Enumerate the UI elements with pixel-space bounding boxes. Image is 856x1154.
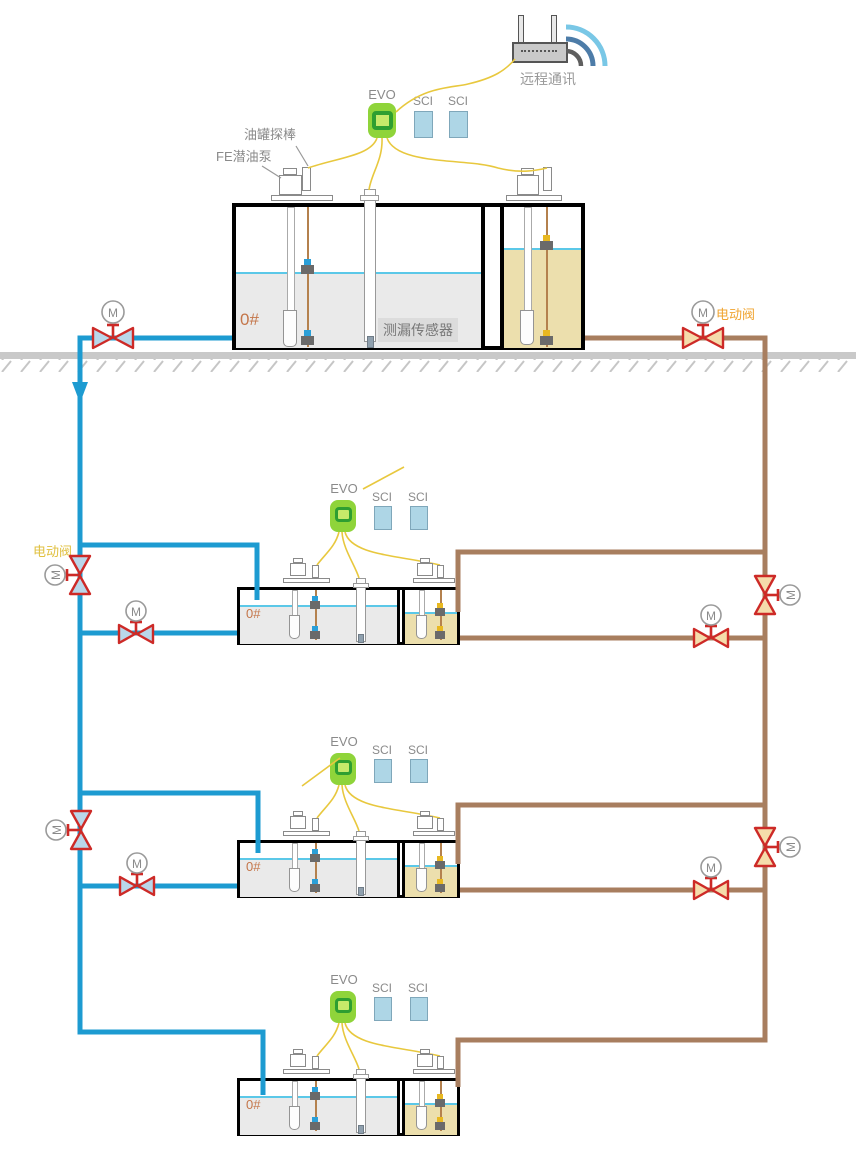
motor-valve: M: [93, 301, 133, 348]
sci-module: [410, 997, 428, 1021]
motor-valve: M: [120, 853, 154, 895]
sci-label: SCI: [407, 95, 439, 108]
tank-probe-icon: [437, 1056, 444, 1069]
valve-motor-label: M: [706, 609, 716, 623]
probe-float: [435, 861, 445, 869]
signal-wiring: [302, 59, 547, 786]
evo-screen-icon: [372, 111, 393, 130]
valve-motor-label: M: [131, 605, 141, 619]
probe-float: [435, 631, 445, 639]
compartment-divider: [397, 1078, 400, 1136]
sci-module: [374, 997, 392, 1021]
sci-label: SCI: [403, 491, 433, 504]
sci-module: [410, 506, 428, 530]
submersible-pump-head-icon: [417, 816, 433, 829]
submersible-pump-head-icon: [517, 175, 539, 195]
leak-sensor-collar: [353, 1074, 369, 1079]
ground-line: [0, 352, 856, 372]
motor-valve: M: [694, 857, 728, 899]
pump-head-cap: [283, 168, 297, 175]
pump-column: [292, 843, 298, 869]
leak-sensor-label: 测漏传感器: [378, 318, 458, 342]
valve-motor-label: M: [784, 590, 798, 600]
evo-label: EVO: [324, 735, 364, 749]
router-leds: [521, 50, 557, 52]
remote-comm-label: 远程通讯: [520, 72, 576, 87]
pump-column: [419, 1081, 425, 1107]
electric-valve-label: 电动阀: [716, 304, 755, 323]
pump-column: [524, 207, 532, 311]
router-antenna-icon: [518, 15, 524, 44]
flow-arrow: [72, 382, 88, 403]
pump-head-cap: [420, 558, 430, 563]
evo-screen-icon: [335, 507, 352, 522]
submersible-pump-head-icon: [290, 1054, 306, 1067]
leak-sensor-collar: [360, 195, 379, 201]
tank-right-compartment-liquid: [405, 865, 457, 897]
probe-float: [310, 854, 320, 862]
pump-column: [292, 590, 298, 616]
manhole-flange: [413, 578, 455, 583]
probe-float: [435, 1122, 445, 1130]
submersible-pump-head-icon: [417, 1054, 433, 1067]
pump-head-cap: [521, 168, 534, 175]
valve-motor-label: M: [49, 570, 63, 580]
valve-motor-label: M: [132, 857, 142, 871]
compartment-divider: [397, 587, 400, 645]
tank-probe-icon: [437, 818, 444, 831]
fuel-grade-label: 0#: [246, 1097, 260, 1112]
evo-controller: [330, 991, 356, 1023]
motor-valve: M: [45, 556, 90, 594]
tank-probe-label: 油罐探棒: [244, 128, 296, 142]
submersible-pump-body-icon: [289, 615, 300, 639]
submersible-pump-body-icon: [520, 310, 534, 345]
leak-sensor-icon: [358, 634, 364, 643]
submersible-pump-head-icon: [279, 175, 302, 195]
pump-head-cap: [293, 811, 303, 816]
sci-label: SCI: [403, 744, 433, 757]
manhole-flange: [506, 195, 562, 201]
evo-controller: [330, 500, 356, 532]
sci-label: SCI: [367, 982, 397, 995]
probe-float: [540, 241, 553, 250]
tank-probe-icon: [312, 1056, 319, 1069]
probe-float: [310, 631, 320, 639]
submersible-pump-body-icon: [289, 1106, 300, 1130]
pump-column: [419, 843, 425, 869]
tank-right-compartment-liquid: [405, 1103, 457, 1135]
pump-head-cap: [293, 558, 303, 563]
submersible-pump-head-icon: [290, 816, 306, 829]
manhole-flange: [271, 195, 333, 201]
leak-sensor-tube: [364, 189, 376, 342]
tank-probe-icon: [312, 818, 319, 831]
sci-label: SCI: [403, 982, 433, 995]
sci-module: [414, 111, 433, 138]
evo-screen-icon: [335, 760, 352, 775]
wifi-signal-icon: [566, 27, 605, 66]
leak-sensor-collar: [353, 836, 369, 841]
compartment-divider: [481, 203, 485, 350]
sci-module: [449, 111, 468, 138]
probe-float: [301, 265, 314, 274]
probe-float: [540, 336, 553, 345]
valve-motor-label: M: [698, 306, 708, 320]
sci-module: [374, 506, 392, 530]
evo-controller: [330, 753, 356, 785]
tank-probe-icon: [312, 565, 319, 578]
leak-sensor-icon: [358, 887, 364, 896]
evo-label: EVO: [324, 973, 364, 987]
fuel-grade-label: 0#: [246, 859, 260, 874]
motor-valve: M: [755, 576, 800, 614]
leader-line: [296, 146, 308, 166]
manhole-flange: [283, 1069, 330, 1074]
tank-monitoring-diagram: 远程通讯 EVO SCI SCI 油罐探棒 FE潜油泵 0# 测漏传感器 电动阀…: [0, 0, 856, 1154]
router-antenna-icon: [551, 15, 557, 44]
motor-valve: M: [119, 601, 153, 643]
pump-head-cap: [420, 1049, 430, 1054]
manhole-flange: [413, 1069, 455, 1074]
valve-motor-label: M: [706, 861, 716, 875]
leak-sensor-icon: [367, 336, 374, 348]
manhole-flange: [413, 831, 455, 836]
probe-rod: [307, 207, 309, 347]
motor-valve: M: [694, 605, 728, 647]
probe-float: [435, 884, 445, 892]
probe-float: [310, 884, 320, 892]
leak-sensor-collar: [353, 583, 369, 588]
evo-label: EVO: [324, 482, 364, 496]
submersible-pump-body-icon: [416, 615, 427, 639]
probe-rod: [546, 207, 548, 347]
submersible-pump-head-icon: [417, 563, 433, 576]
compartment-divider: [397, 840, 400, 898]
fuel-grade-label: 0#: [246, 606, 260, 621]
wifi-router-icon: [512, 42, 568, 63]
submersible-pump-head-icon: [290, 563, 306, 576]
probe-float: [310, 601, 320, 609]
valve-motor-label: M: [108, 306, 118, 320]
tank-probe-icon: [543, 167, 552, 191]
electric-valve-label: 电动阀: [33, 541, 72, 560]
sci-label: SCI: [367, 744, 397, 757]
tank-station: EVO SCI SCI: [228, 718, 478, 908]
submersible-pump-body-icon: [283, 310, 297, 347]
valve-motor-label: M: [784, 842, 798, 852]
pump-head-cap: [420, 811, 430, 816]
evo-controller: [368, 103, 396, 138]
tank-right-compartment-liquid: [405, 612, 457, 644]
probe-float: [435, 1099, 445, 1107]
leak-sensor-icon: [358, 1125, 364, 1134]
fuel-grade-label: 0#: [240, 310, 259, 330]
pump-column: [287, 207, 295, 311]
evo-screen-icon: [335, 998, 352, 1013]
probe-float: [435, 608, 445, 616]
sci-module: [410, 759, 428, 783]
manhole-flange: [283, 831, 330, 836]
motor-valve: M: [46, 811, 91, 849]
sci-module: [374, 759, 392, 783]
probe-float: [301, 336, 314, 345]
sci-label: SCI: [442, 95, 474, 108]
sci-label: SCI: [367, 491, 397, 504]
pipe-brown: [458, 338, 765, 1087]
pump-column: [292, 1081, 298, 1107]
submersible-pump-label: FE潜油泵: [216, 150, 272, 164]
submersible-pump-body-icon: [416, 1106, 427, 1130]
tank-probe-icon: [437, 565, 444, 578]
motor-valve: M: [755, 828, 800, 866]
submersible-pump-body-icon: [289, 868, 300, 892]
valve-motor-label: M: [50, 825, 64, 835]
evo-label: EVO: [363, 88, 401, 102]
submersible-pump-body-icon: [416, 868, 427, 892]
tank-station: EVO SCI SCI: [228, 956, 478, 1146]
pump-column: [419, 590, 425, 616]
probe-float: [310, 1092, 320, 1100]
tank-probe-icon: [302, 167, 311, 191]
probe-float: [310, 1122, 320, 1130]
pump-head-cap: [293, 1049, 303, 1054]
tank-station: EVO SCI SCI: [228, 465, 478, 655]
manhole-flange: [283, 578, 330, 583]
